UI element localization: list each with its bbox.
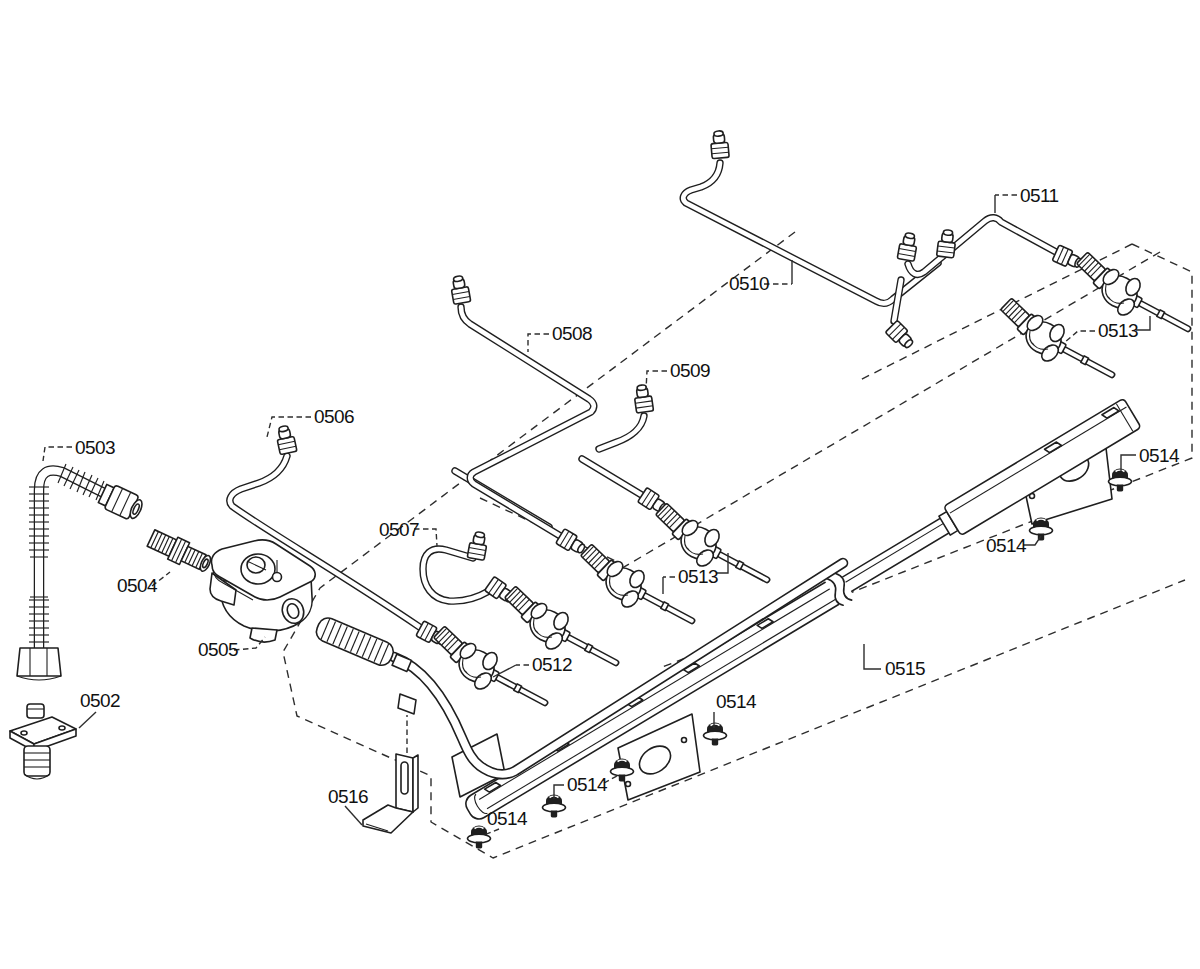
part-0514-screw — [704, 723, 727, 746]
nut-0510-left — [710, 130, 729, 158]
leader-0508 — [528, 334, 549, 352]
part-label-0513-top: 0513 — [1098, 320, 1138, 341]
nut-0511-left — [897, 232, 918, 262]
part-label-0505: 0505 — [198, 639, 238, 660]
part-0516-bracket — [363, 754, 418, 833]
leader-0503 — [43, 447, 72, 461]
leader-0513-top-a — [1064, 331, 1095, 343]
nut-0508-top — [449, 275, 470, 305]
part-label-0514-2: 0514 — [986, 535, 1027, 556]
leader-0516 — [345, 806, 362, 825]
part-label-0503: 0503 — [75, 437, 115, 458]
leader-0513-top-b — [1136, 316, 1150, 330]
part-0514-screw — [1109, 469, 1132, 492]
part-label-0514-4: 0514 — [567, 774, 608, 795]
leader-0509 — [646, 371, 667, 390]
part-label-0510: 0510 — [729, 273, 769, 294]
part-label-0516: 0516 — [328, 786, 368, 807]
part-label-0509: 0509 — [670, 360, 710, 381]
leader-0502 — [79, 712, 96, 728]
part-label-0514-1: 0514 — [1139, 445, 1180, 466]
nut-0510-mid — [937, 229, 957, 258]
part-label-0515: 0515 — [885, 658, 925, 679]
leader-0515 — [864, 644, 881, 669]
part-label-0514-3: 0514 — [716, 691, 757, 712]
part-label-0502: 0502 — [80, 690, 120, 711]
part-label-0504: 0504 — [117, 575, 158, 596]
part-label-0511: 0511 — [1020, 185, 1058, 206]
part-label-0514-5: 0514 — [487, 808, 528, 829]
tube-clip — [398, 694, 416, 714]
part-label-0512: 0512 — [532, 654, 572, 675]
part-label-0506: 0506 — [314, 406, 354, 427]
parts-diagram-canvas: 0502050305040505050605070508050905100511… — [0, 0, 1200, 969]
part-label-0508: 0508 — [552, 323, 592, 344]
part-0502-nozzle-holder — [10, 704, 76, 779]
nut-0507-top — [467, 531, 488, 561]
part-0509-pipe — [582, 416, 645, 497]
part-label-0513-mid: 0513 — [678, 566, 718, 587]
leader-0514-1 — [1121, 455, 1136, 471]
part-label-0507: 0507 — [379, 519, 419, 540]
part-0504-adapter — [146, 527, 214, 576]
part-0505-regulator — [210, 540, 315, 642]
parts-diagram-page: 0502050305040505050605070508050905100511… — [0, 0, 1200, 969]
part-0503-flex-hose — [17, 464, 146, 680]
nut-branch — [885, 320, 916, 351]
nut-0511-right — [1052, 245, 1084, 272]
nut-0509-top — [633, 384, 654, 413]
hose-nut — [97, 482, 146, 523]
nut-0506-top — [275, 425, 297, 455]
part-0511-pipe — [894, 218, 1056, 321]
